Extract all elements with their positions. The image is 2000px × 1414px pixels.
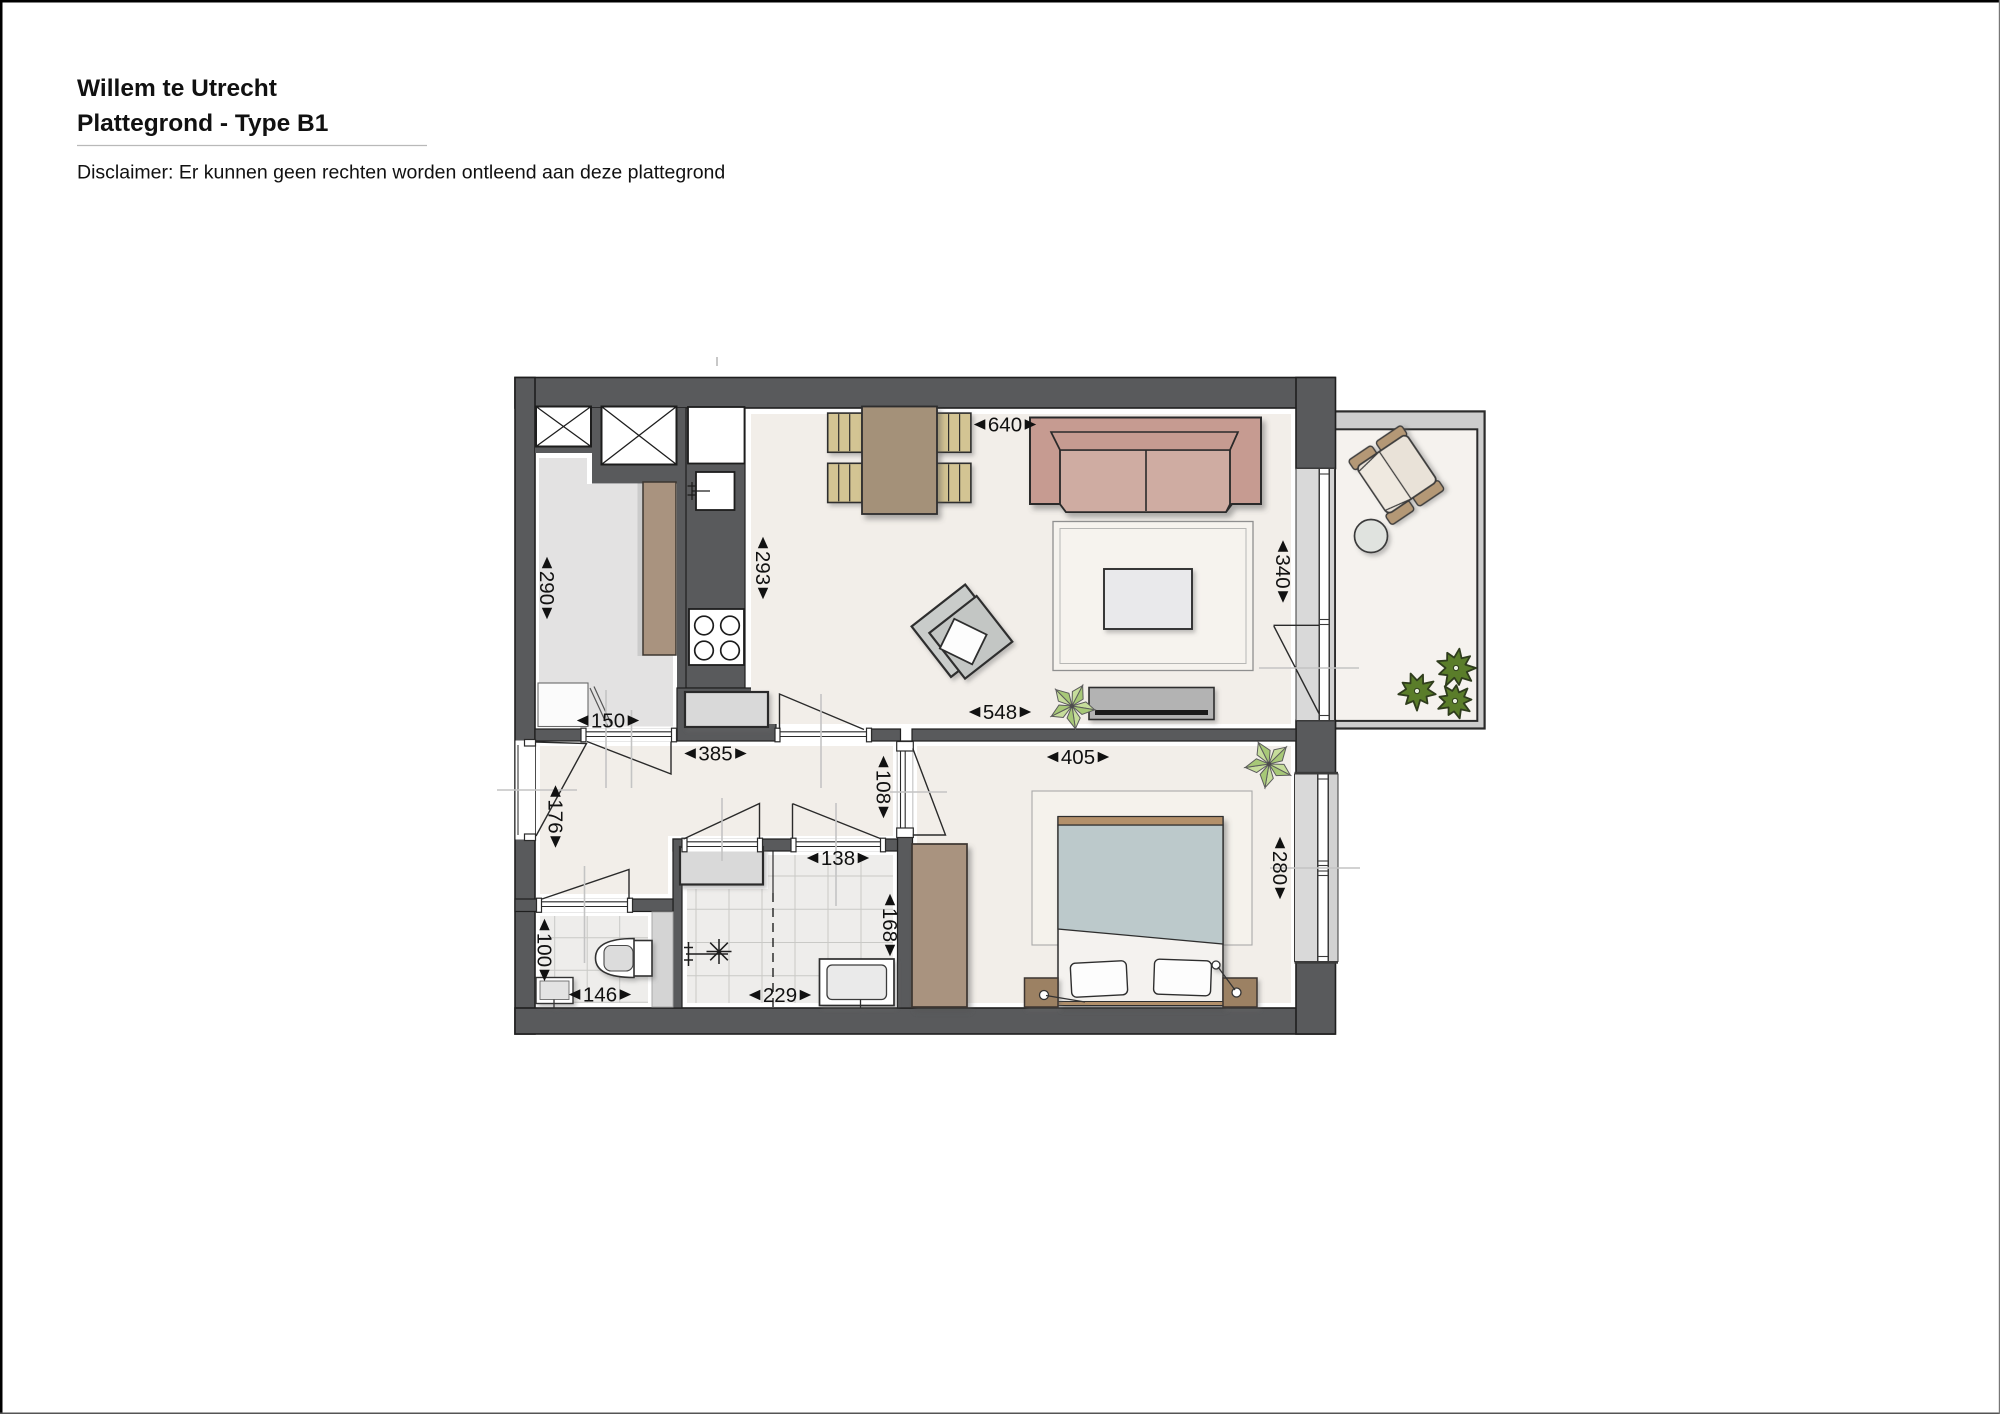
svg-text:385: 385 — [698, 743, 732, 766]
svg-text:138: 138 — [821, 847, 855, 870]
svg-text:108: 108 — [871, 770, 894, 804]
svg-text:293: 293 — [751, 551, 774, 585]
svg-text:176: 176 — [543, 799, 566, 833]
svg-text:Plattegrond - Type B1: Plattegrond - Type B1 — [77, 110, 328, 137]
svg-text:Willem te Utrecht: Willem te Utrecht — [77, 75, 277, 102]
svg-text:150: 150 — [591, 710, 625, 733]
svg-text:Disclaimer: Er kunnen geen rec: Disclaimer: Er kunnen geen rechten worde… — [77, 162, 725, 184]
svg-text:280: 280 — [1268, 851, 1291, 885]
svg-text:100: 100 — [532, 933, 555, 967]
svg-text:168: 168 — [878, 908, 901, 942]
svg-text:548: 548 — [983, 701, 1017, 724]
svg-text:640: 640 — [988, 414, 1022, 437]
svg-text:290: 290 — [535, 571, 558, 605]
svg-text:405: 405 — [1061, 746, 1095, 769]
svg-text:340: 340 — [1271, 554, 1294, 588]
svg-text:146: 146 — [583, 984, 617, 1007]
svg-text:229: 229 — [763, 984, 797, 1007]
